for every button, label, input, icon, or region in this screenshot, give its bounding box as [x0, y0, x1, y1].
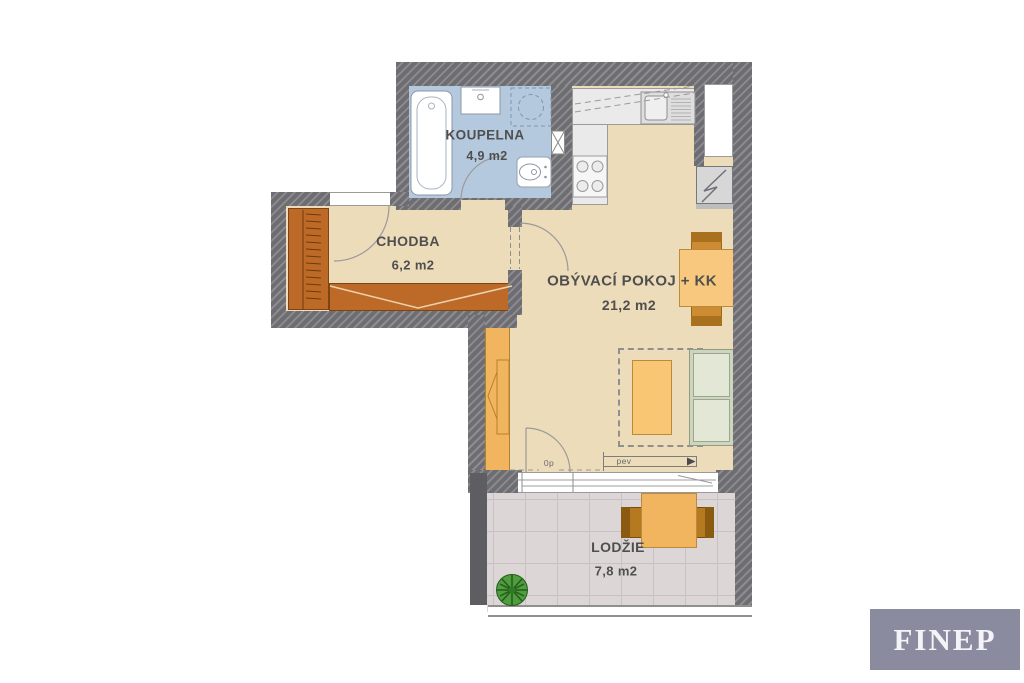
finep-logo: FINEP	[870, 609, 1020, 670]
livingroom-wardrobe-front	[488, 360, 509, 434]
floorplan-lineart	[0, 0, 1024, 683]
loggia-window-details	[518, 473, 716, 492]
room-area-hallway: 6,2 m2	[392, 258, 435, 273]
finep-logo-text: FINEP	[894, 622, 997, 658]
stove	[573, 156, 607, 197]
room-label-loggia: LODŽIE	[591, 539, 645, 555]
plant	[497, 575, 528, 606]
room-label-livingroom: OBÝVACÍ POKOJ + KK	[547, 273, 717, 290]
hallway-wardrobe-hangers	[306, 214, 321, 299]
room-area-bathroom: 4,9 m2	[466, 149, 507, 163]
threshold-annotation: 0p	[544, 458, 554, 468]
room-area-livingroom: 21,2 m2	[602, 297, 656, 313]
bathroom-sink	[461, 87, 500, 114]
room-area-loggia: 7,8 m2	[595, 564, 638, 579]
room-label-hallway: CHODBA	[376, 233, 440, 249]
livingroom-door-arc	[520, 223, 568, 271]
fixed-window-annotation: pev	[617, 456, 632, 466]
toilet	[517, 157, 551, 187]
vent-shaft-symbol	[552, 131, 565, 154]
washing-machine	[511, 88, 551, 126]
shaft-zigzag	[702, 170, 726, 202]
room-label-bathroom: KOUPELNA	[446, 128, 525, 143]
floorplan-canvas: KOUPELNA 4,9 m2 CHODBA 6,2 m2 OBÝVACÍ PO…	[0, 0, 1024, 683]
opening-dashed-lines	[511, 227, 520, 269]
hallway-wardrobe-front-lines	[330, 286, 512, 308]
bathtub	[411, 91, 452, 195]
